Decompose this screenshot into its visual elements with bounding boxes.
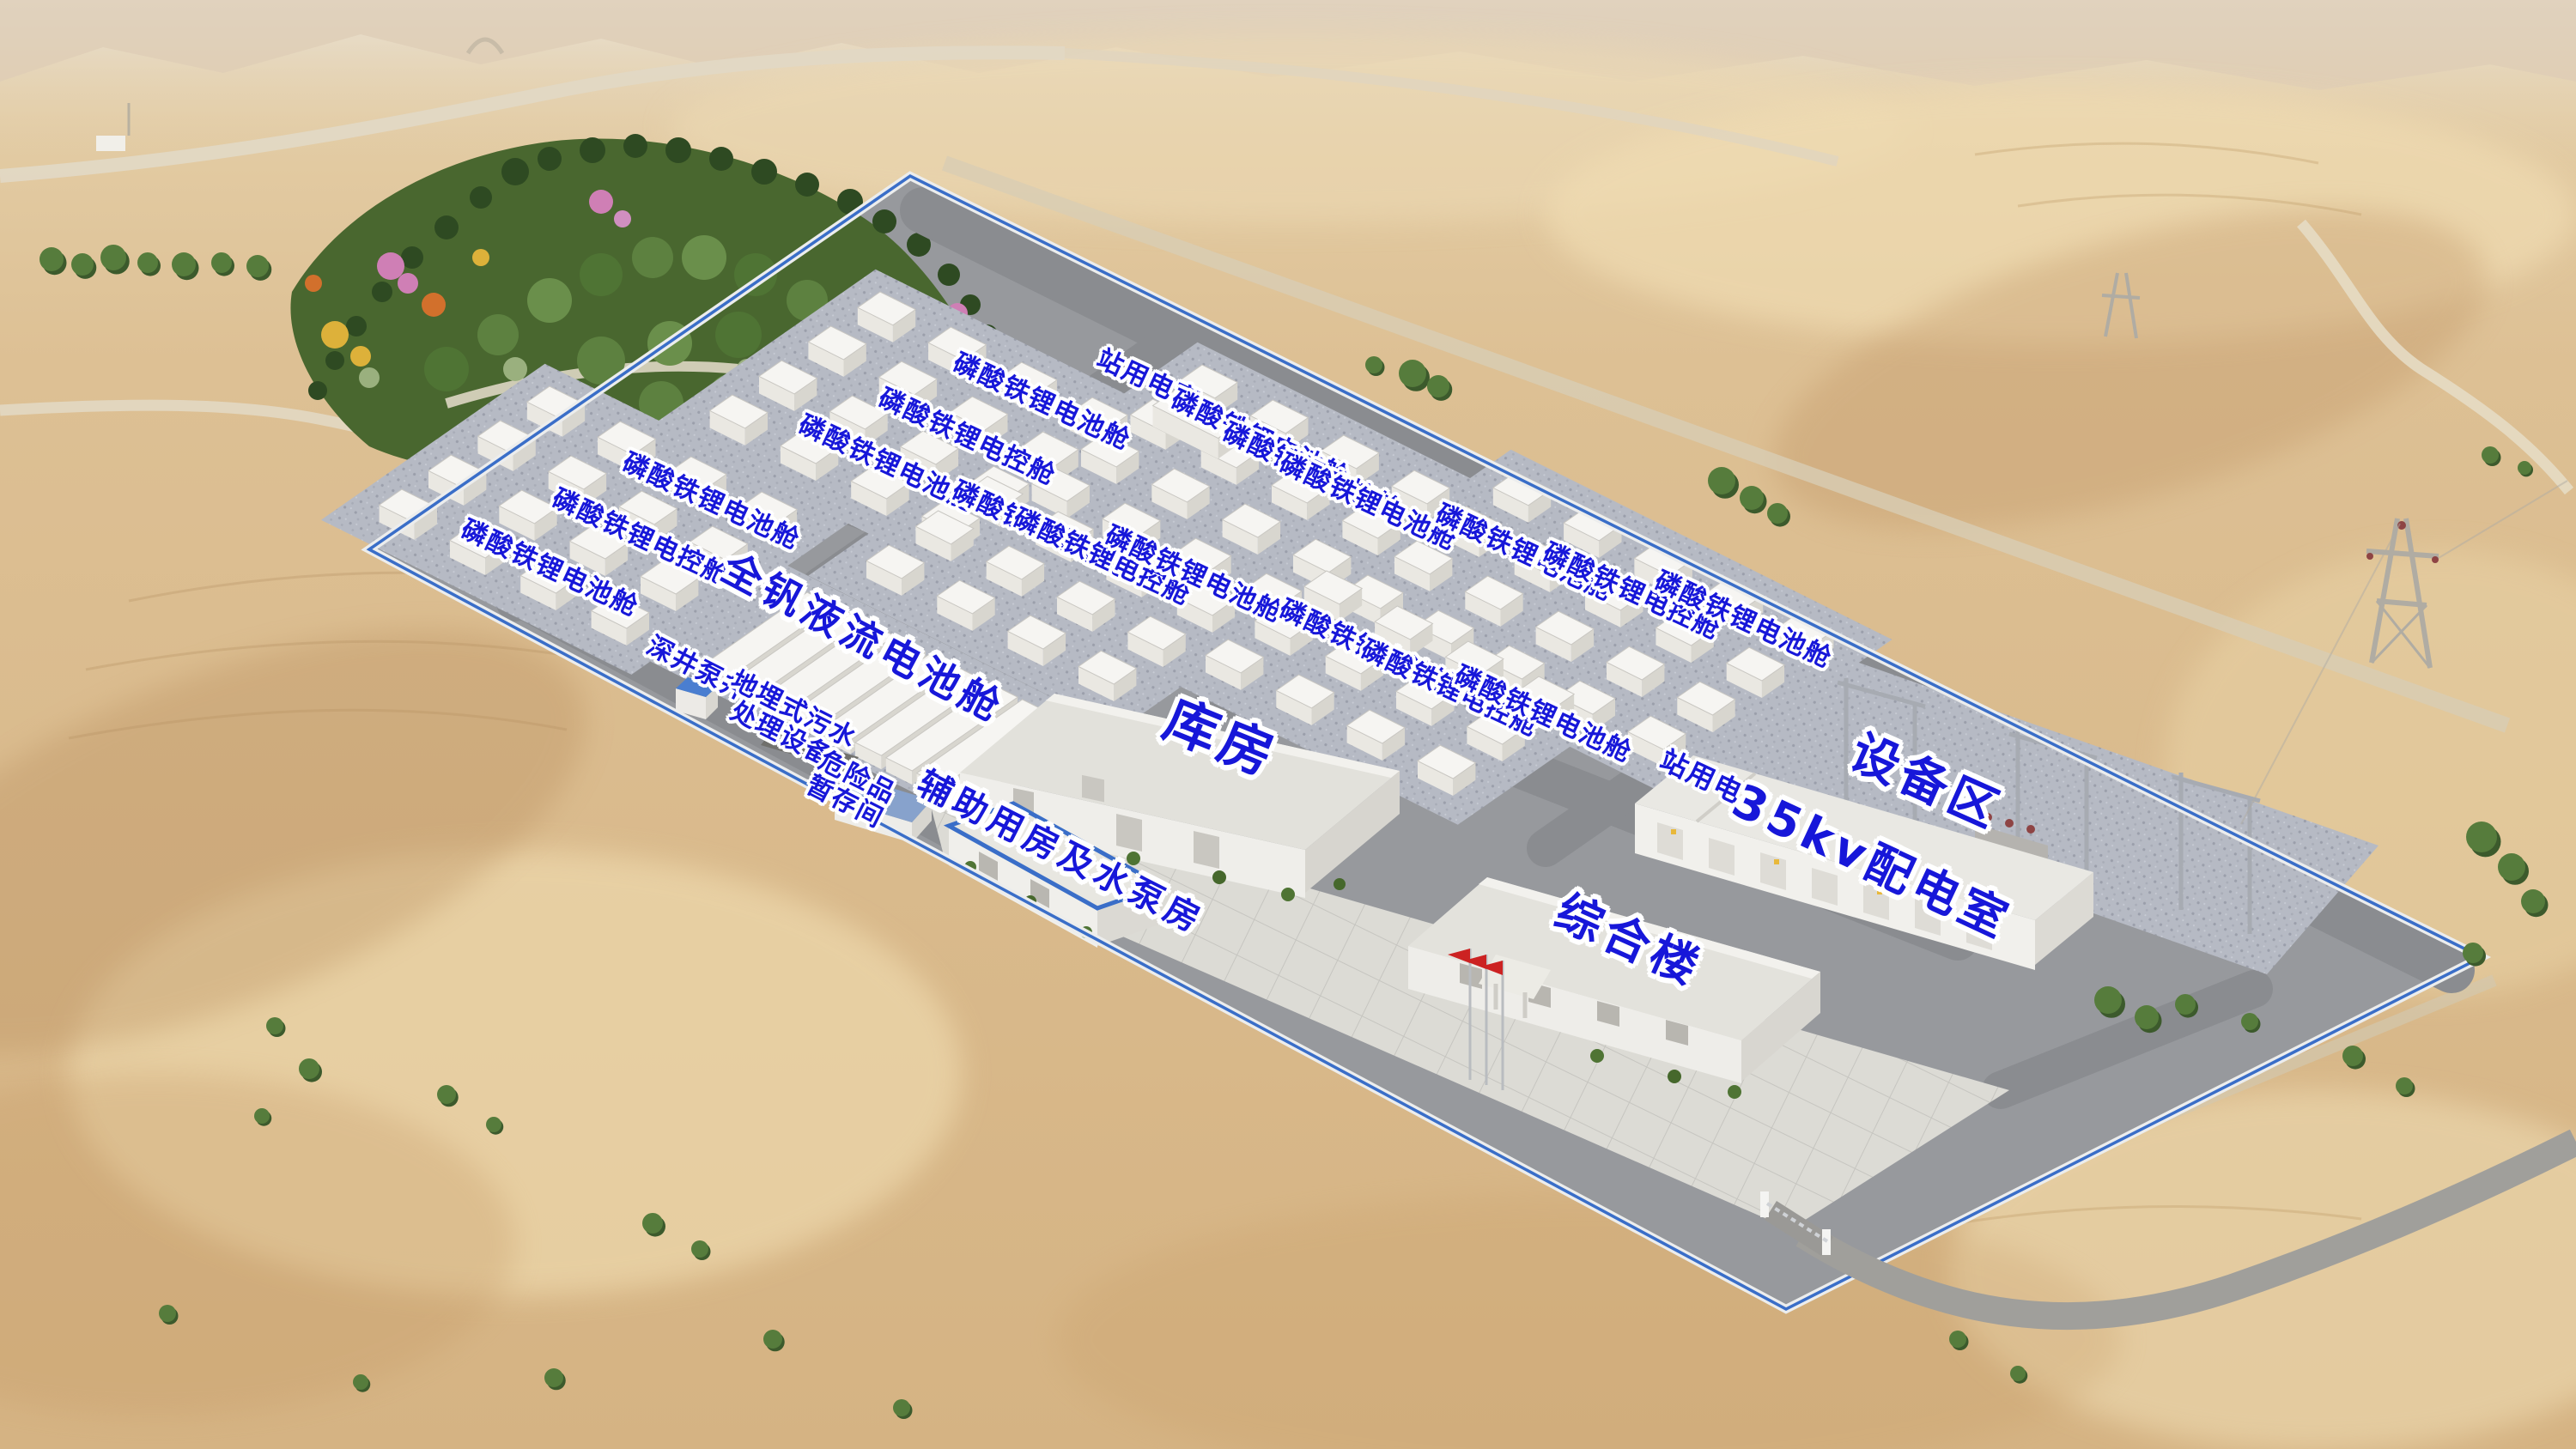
label-complex-building: 综合楼 <box>1548 887 1710 995</box>
label-warehouse: 库房 <box>1156 690 1285 787</box>
label-battery-cabin-e1: 磷酸铁锂电池舱 <box>1431 500 1618 607</box>
label-battery-cabin-d3: 磷酸铁锂电池舱 <box>1275 450 1461 556</box>
label-auxiliary-pump-house: 辅助用房及水泵房 <box>911 765 1209 942</box>
aerial-rendering-energy-storage-plant: 磷酸铁锂电池舱 磷酸铁锂电控舱 磷酸铁锂电池舱 磷酸铁锂电池舱 磷酸铁锂电控舱 … <box>0 0 2576 1449</box>
facility-labels: 磷酸铁锂电池舱 磷酸铁锂电控舱 磷酸铁锂电池舱 磷酸铁锂电池舱 磷酸铁锂电控舱 … <box>0 0 2576 1449</box>
label-equipment-area: 设备区 <box>1843 727 2010 840</box>
